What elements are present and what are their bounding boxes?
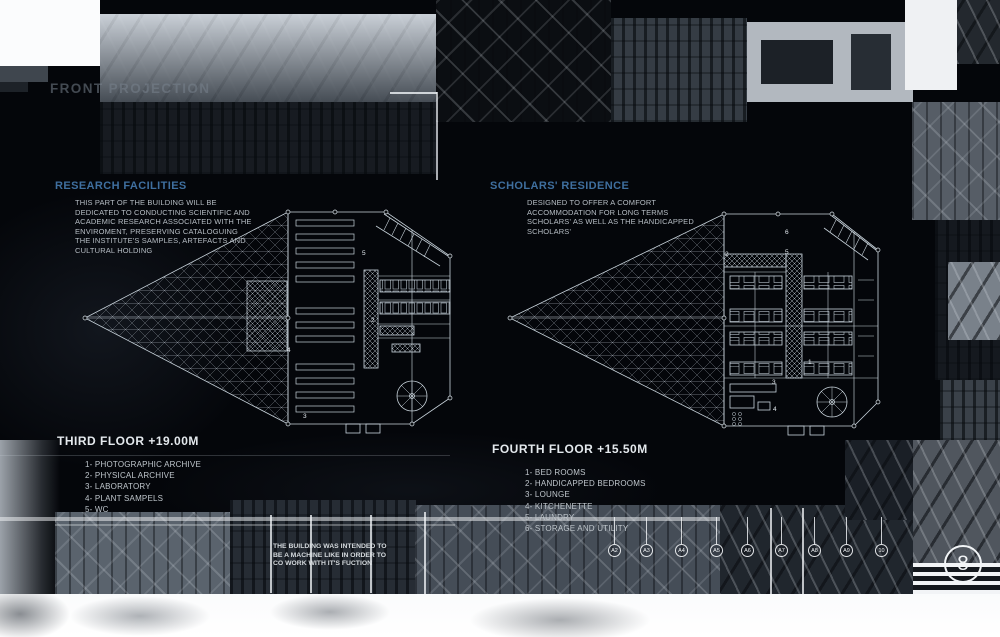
legend-item: 3- LOUNGE — [525, 489, 646, 500]
photo-fragment — [747, 22, 913, 102]
glitch-line — [436, 92, 438, 180]
floor-label-third: THIRD FLOOR +19.00M — [57, 434, 199, 448]
grid-bubble: 10 — [875, 544, 888, 557]
grid-bubble: A4 — [675, 544, 688, 557]
legend-item: 2- PHYSICAL ARCHIVE — [85, 470, 201, 481]
description-line: ACADEMIC RESEARCH ASSOCIATED WITH THE — [75, 217, 252, 227]
photo-fragment — [0, 82, 28, 92]
legend-item: 4- PLANT SAMPELS — [85, 493, 201, 504]
photo-fragment — [0, 0, 100, 66]
glitch-line — [270, 515, 272, 593]
grid-line — [614, 517, 615, 544]
room-number: 6 — [785, 229, 789, 236]
room-number: 3 — [772, 379, 776, 386]
legend-item: 5- LAUNDRY — [525, 512, 646, 523]
concept-quote: THE BUILDING WAS INTENDED TO BE A MACHIN… — [273, 543, 387, 569]
room-number: 1 — [808, 359, 812, 366]
photo-fragment — [905, 0, 957, 90]
description-line: ENVIROMENT, PRESERVING CATALOGUING — [75, 227, 252, 237]
room-number: 5 — [785, 249, 789, 256]
legend-item: 4- KITCHENETTE — [525, 501, 646, 512]
grid-bubble: A9 — [840, 544, 853, 557]
photo-fragment — [912, 102, 1000, 220]
room-number: 4 — [287, 347, 291, 354]
room-number: 2 — [725, 251, 729, 258]
description-line: SCHOLARS' — [527, 227, 694, 237]
grid-line — [716, 517, 717, 544]
glitch-line — [390, 92, 437, 94]
room-number: 3 — [303, 413, 307, 420]
research-description: THIS PART OF THE BUILDING WILL BE DEDICA… — [75, 198, 252, 256]
section-heading-research: RESEARCH FACILITIES — [55, 180, 187, 192]
glitch-line — [802, 508, 804, 594]
legend-item: 5- WC — [85, 504, 201, 515]
photo-fragment — [940, 380, 1000, 440]
quote-line: THE BUILDING WAS INTENDED TO — [273, 543, 387, 552]
description-line: DEDICATED TO CONDUCTING SCIENTIFIC AND — [75, 208, 252, 218]
photo-fragment — [0, 66, 48, 82]
grid-line — [814, 517, 815, 544]
grid-bubble: A7 — [775, 544, 788, 557]
description-line: SCHOLARS' AS WELL AS THE HANDICAPPED — [527, 217, 694, 227]
grid-line — [681, 517, 682, 544]
legend-item: 1- PHOTOGRAPHIC ARCHIVE — [85, 459, 201, 470]
description-line: THIS PART OF THE BUILDING WILL BE — [75, 198, 252, 208]
legend-item: 3- LABORATORY — [85, 481, 201, 492]
room-number: 2 — [371, 317, 375, 324]
quote-line: CO WORK WITH IT'S FUCTION — [273, 560, 387, 569]
legend-item: 1- BED ROOMS — [525, 467, 646, 478]
glitch-line — [0, 455, 450, 456]
presentation-board: FRONT PROJECTION — [0, 0, 1000, 637]
legend-item: 2- HANDICAPPED BEDROOMS — [525, 478, 646, 489]
quote-line: BE A MACHINE LIKE IN ORDER TO — [273, 552, 387, 561]
photo-fragment — [957, 0, 1000, 64]
glitch-line — [770, 508, 772, 594]
legend-fourth-floor: 1- BED ROOMS 2- HANDICAPPED BEDROOMS 3- … — [525, 467, 646, 534]
description-line: DESIGNED TO OFFER A COMFORT — [527, 198, 694, 208]
bottom-fade — [0, 594, 1000, 637]
photo-fragment — [436, 0, 611, 122]
floor-plan-fourth: 2 6 5 1 3 4 — [502, 206, 884, 438]
grid-line — [646, 517, 647, 544]
description-line: ACCOMMODATION FOR LONG TERMS — [527, 208, 694, 218]
page-number: 8 — [957, 552, 969, 576]
page-number-badge: 8 — [944, 545, 982, 583]
legend-third-floor: 1- PHOTOGRAPHIC ARCHIVE 2- PHYSICAL ARCH… — [85, 459, 201, 515]
grid-line — [881, 517, 882, 544]
grid-line — [781, 517, 782, 544]
floor-label-fourth: FOURTH FLOOR +15.50M — [492, 442, 648, 456]
room-number: 5 — [362, 250, 366, 257]
residence-description: DESIGNED TO OFFER A COMFORT ACCOMMODATIO… — [527, 198, 694, 236]
description-line: CULTURAL HOLDING — [75, 246, 252, 256]
photo-fragment — [948, 262, 1000, 340]
grid-bubble: A2 — [608, 544, 621, 557]
grid-line — [747, 517, 748, 544]
grid-bubble: A5 — [710, 544, 723, 557]
grid-bubble: A3 — [640, 544, 653, 557]
grid-bubble: A6 — [741, 544, 754, 557]
grid-line — [846, 517, 847, 544]
legend-item: 6- STORAGE AND UTILITY — [525, 523, 646, 534]
photo-fragment — [100, 102, 436, 174]
glitch-line — [55, 524, 455, 526]
photo-fragment — [611, 18, 747, 122]
grid-bubble: A8 — [808, 544, 821, 557]
page-title: FRONT PROJECTION — [50, 81, 210, 96]
room-number: 4 — [773, 406, 777, 413]
glitch-line — [424, 512, 426, 594]
section-heading-residence: SCHOLARS' RESIDENCE — [490, 180, 629, 192]
description-line: THE INSTITUTE'S SAMPLES, ARTEFACTS AND — [75, 236, 252, 246]
